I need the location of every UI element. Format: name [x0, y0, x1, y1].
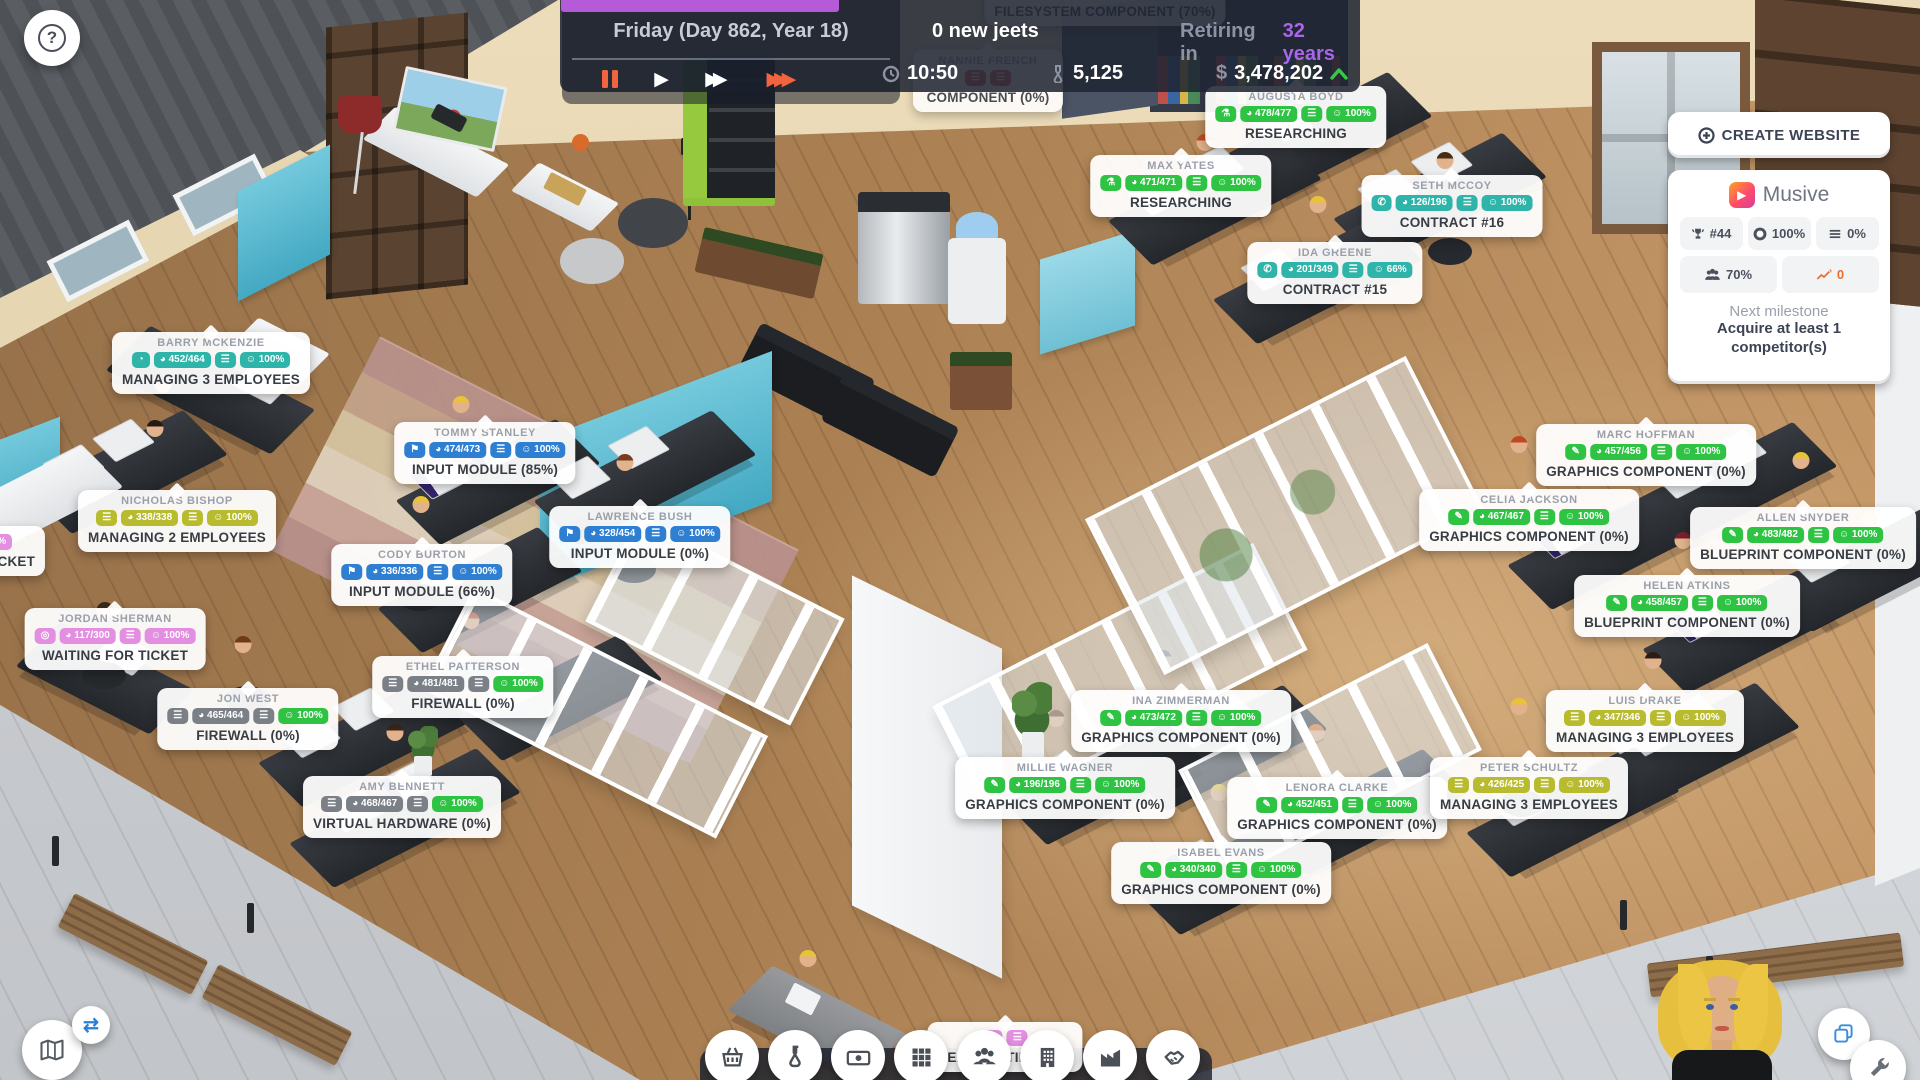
- employee-name: NICHOLAS BISHOP: [88, 495, 266, 507]
- bollard: [52, 836, 59, 866]
- employee-task: BLUEPRINT COMPONENT (0%): [1700, 547, 1906, 562]
- speed-badge: ◕ 471/471: [1125, 175, 1182, 191]
- employee-card[interactable]: LENORA CLARKE✎◕ 452/451☰☺ 100%GRAPHICS C…: [1227, 777, 1447, 839]
- mood-badge: ☺ 100%: [1675, 710, 1726, 726]
- queue-icon: ☰: [253, 708, 274, 724]
- mood-badge: ☺ 100%: [1367, 797, 1418, 813]
- speed-badge: ◕ 347/346: [1589, 710, 1646, 726]
- money-up-icon: [1330, 67, 1348, 80]
- mood-badge: ☺ 100%: [1717, 595, 1768, 611]
- toolbar-building-button[interactable]: [1020, 1030, 1074, 1080]
- role-icon: ☰: [321, 796, 342, 812]
- queue-icon: ☰: [1534, 509, 1555, 525]
- queue-icon: ☰: [468, 676, 489, 692]
- mood-badge: ☺ 100%: [432, 796, 483, 812]
- red-lamp: [338, 96, 382, 134]
- employee-name: LENORA CLARKE: [1237, 782, 1437, 794]
- employee-name: MARC HOFFMAN: [1546, 429, 1746, 441]
- building-icon: [1034, 1044, 1061, 1071]
- role-icon: ⚑: [404, 442, 425, 458]
- create-website-button[interactable]: CREATE WEBSITE: [1668, 112, 1890, 158]
- coffee-machine: [858, 192, 950, 304]
- employee-badges: ⚗◕ 471/471☰☺ 100%: [1100, 175, 1261, 191]
- queue-icon: ☰: [1301, 106, 1322, 122]
- mood-badge: ☺ 100%: [1251, 862, 1302, 878]
- tv-screen: [392, 66, 507, 152]
- employee-name: ETHEL PATTERSON: [382, 661, 543, 673]
- speed-badge: ◕ 336/336: [366, 564, 423, 580]
- employee-badges: ✎◕ 457/456☰☺ 100%: [1546, 444, 1746, 460]
- bollard: [247, 903, 254, 933]
- employee-badges: ✎◕ 340/340☰☺ 100%: [1121, 862, 1321, 878]
- toolbar-deals-button[interactable]: [1146, 1030, 1200, 1080]
- deals-icon: [1160, 1044, 1187, 1071]
- game-viewport: BARRY MCKENZIE◔◕ 452/464☰☺ 100%MANAGING …: [0, 0, 1920, 1080]
- queue-icon: ☰: [1457, 195, 1478, 211]
- speed-badge: ◕ 458/457: [1631, 595, 1688, 611]
- employee-badges: ✎◕ 196/196☰☺ 100%: [965, 777, 1165, 793]
- new-jeets-label: 0 new jeets: [932, 20, 1039, 43]
- mood-badge: ☺ 100%: [207, 510, 258, 526]
- employee-card[interactable]: ALLEN SNYDER✎◕ 483/482☰☺ 100%BLUEPRINT C…: [1690, 507, 1916, 569]
- employee-card[interactable]: ETHEL PATTERSON☰◕ 481/481☰☺ 100%FIREWALL…: [372, 656, 553, 718]
- employee-badges: ☰◕ 465/464☰☺ 100%: [167, 708, 328, 724]
- speed-badge: ◕ 473/472: [1125, 710, 1182, 726]
- employee-card[interactable]: HELEN ATKINS✎◕ 458/457☰☺ 100%BLUEPRINT C…: [1574, 575, 1800, 637]
- tv-console: [363, 107, 510, 198]
- employee-task: GRAPHICS COMPONENT (0%): [1121, 882, 1321, 897]
- queue-icon: ☰: [1070, 777, 1091, 793]
- role-icon: ◔: [132, 352, 150, 368]
- speed-badge: ◕ 201/349: [1282, 262, 1339, 278]
- employee-badges: ✎◕ 483/482☰☺ 100%: [1700, 527, 1906, 543]
- employee-name: CELIA JACKSON: [1429, 494, 1629, 506]
- queue-icon: ☰: [182, 510, 203, 526]
- employee-task: MANAGING 3 EMPLOYEES: [122, 372, 300, 387]
- rotate-button[interactable]: ⇄: [72, 1006, 110, 1044]
- character[interactable]: [382, 740, 408, 770]
- rotate-icon: ⇄: [83, 1014, 99, 1037]
- employee-badges: ☰◕ 347/346☰☺ 100%: [1556, 710, 1734, 726]
- role-icon: ⚑: [559, 526, 580, 542]
- website-summary-card[interactable]: ▶ Musive #44 100% 0% 70% 0: [1668, 170, 1890, 384]
- basketball: [572, 134, 589, 151]
- plus-icon: [1698, 127, 1715, 144]
- mood-badge: ☺ 100%: [1095, 777, 1146, 793]
- employee-badges: ☰◕ 481/481☰☺ 100%: [382, 676, 543, 692]
- mood-badge: ☺ 100%: [240, 352, 291, 368]
- queue-icon: ☰: [407, 796, 428, 812]
- planter-box: [694, 227, 823, 299]
- speed-badge: ◕ 467/467: [1473, 509, 1530, 525]
- employee-name: PETER SCHULTZ: [1440, 762, 1618, 774]
- speed-badge: ◕ 465/464: [192, 708, 249, 724]
- employee-name: AMY BENNETT: [313, 781, 491, 793]
- bench: [58, 893, 209, 995]
- teal-divider: [1040, 230, 1135, 354]
- employee-task: FIREWALL (0%): [382, 696, 543, 711]
- role-icon: ☰: [96, 510, 117, 526]
- character[interactable]: [612, 470, 638, 500]
- queue-icon: ☰: [1650, 710, 1671, 726]
- employee-card[interactable]: TOMMY STANLEY⚑◕ 474/473☰☺ 100%INPUT MODU…: [394, 422, 575, 484]
- bench: [1647, 933, 1904, 998]
- employee-badges: ⚑◕ 474/473☰☺ 100%: [404, 442, 565, 458]
- lifebuoy-icon: [1753, 227, 1767, 241]
- role-icon: ☰: [1448, 777, 1469, 793]
- employee-task: GRAPHICS COMPONENT (0%): [965, 797, 1165, 812]
- employee-badges: ✎◕ 467/467☰☺ 100%: [1429, 509, 1629, 525]
- employee-card[interactable]: PETER SCHULTZ☰◕ 426/425☰☺ 100%MANAGING 3…: [1430, 757, 1628, 819]
- character[interactable]: [1506, 452, 1532, 482]
- speed-badge: ◕ 452/451: [1281, 797, 1338, 813]
- toolbar-production-button[interactable]: [1083, 1030, 1137, 1080]
- speed-badge: ◕ 483/482: [1747, 527, 1804, 543]
- employee-task: COMPONENT (0%): [923, 90, 1053, 105]
- toolbar-finances-button[interactable]: [831, 1030, 885, 1080]
- play-button[interactable]: ▶: [638, 66, 678, 92]
- office-chair: [1428, 238, 1472, 265]
- employee-task: GRAPHICS COMPONENT (0%): [1081, 730, 1281, 745]
- speed-badge: ◕ 117/300: [59, 628, 115, 644]
- employee-name: LUIS DRAKE: [1556, 695, 1734, 707]
- website-logo-icon: ▶: [1729, 182, 1755, 208]
- lamp-pole: [353, 132, 364, 194]
- queue-icon: ☰: [1343, 262, 1364, 278]
- day-panel: Friday (Day 862, Year 18) ▶ ▶▶ ▶▶▶: [562, 0, 900, 104]
- milestone-label: Next milestone: [1678, 303, 1880, 320]
- employee-name: IDA GREENE: [1257, 247, 1412, 259]
- employee-card[interactable]: MAX YATES⚗◕ 471/471☰☺ 100%RESEARCHING: [1090, 155, 1271, 217]
- help-button[interactable]: ?: [24, 10, 80, 66]
- fast-forward-button[interactable]: ▶▶: [686, 66, 738, 92]
- chart-icon: [1816, 268, 1832, 282]
- map-icon: [38, 1036, 66, 1064]
- employee-name: SETH MCCOY: [1372, 180, 1533, 192]
- clock-indicator: 10:50: [882, 62, 958, 85]
- role-icon: ☰: [382, 676, 403, 692]
- queue-icon: ☰: [1342, 797, 1363, 813]
- plant-pot: [414, 756, 432, 776]
- employee-card[interactable]: BARRY MCKENZIE◔◕ 452/464☰☺ 100%MANAGING …: [112, 332, 310, 394]
- employee-task: MANAGING 3 EMPLOYEES: [1440, 797, 1618, 812]
- users-stat: 70%: [1680, 256, 1777, 293]
- speed-badge: ◕ 328/454: [584, 526, 641, 542]
- employee-badges: ☰◕ 468/467☰☺ 100%: [313, 796, 491, 812]
- employee-name: HELEN ATKINS: [1584, 580, 1790, 592]
- research-indicator: 5,125: [1050, 62, 1123, 85]
- role-icon: ✎: [1566, 444, 1586, 460]
- research-icon: [782, 1044, 809, 1071]
- queue-icon: ☰: [427, 564, 448, 580]
- top-status-bar: Friday (Day 862, Year 18) ▶ ▶▶ ▶▶▶ 0 new…: [560, 0, 1360, 92]
- money-indicator: $ 3,478,202: [1216, 62, 1348, 85]
- teal-divider: [0, 417, 60, 539]
- mood-badge: ☺ 100%: [1676, 444, 1727, 460]
- mood-badge: ☺ 100%: [452, 564, 503, 580]
- speed-badge: ◕ 481/481: [407, 676, 464, 692]
- speed-badge: ◕ 340/340: [1165, 862, 1222, 878]
- pizza-box: [543, 172, 587, 206]
- clock-icon: [882, 65, 900, 83]
- employee-task: MANAGING 3 EMPLOYEES: [1556, 730, 1734, 745]
- team-icon: [971, 1044, 998, 1071]
- mood-badge: ☺ 100%: [1833, 527, 1884, 543]
- employee-badges: ⚗◕ 478/477☰☺ 100%: [1215, 106, 1376, 122]
- employee-task: FIREWALL (0%): [167, 728, 328, 743]
- role-icon: ☰: [1564, 710, 1585, 726]
- toolbar-research-button[interactable]: [768, 1030, 822, 1080]
- employee-badges: ◎◕ 117/300☰☺ 100%: [35, 628, 196, 644]
- role-icon: ✎: [1449, 509, 1469, 525]
- date-label: Friday (Day 862, Year 18): [562, 20, 900, 43]
- pouf-dark: [618, 198, 688, 248]
- employee-task: GRAPHICS COMPONENT (0%): [1429, 529, 1629, 544]
- uptime-stat: 100%: [1748, 217, 1811, 250]
- toolbar-team-button[interactable]: [957, 1030, 1011, 1080]
- employee-badges: ✎◕ 458/457☰☺ 100%: [1584, 595, 1790, 611]
- employee-card[interactable]: ISABEL EVANS✎◕ 340/340☰☺ 100%GRAPHICS CO…: [1111, 842, 1331, 904]
- employee-badges: ✎◕ 473/472☰☺ 100%: [1081, 710, 1281, 726]
- apps-icon: [908, 1044, 935, 1071]
- queue-icon: ☰: [1534, 777, 1555, 793]
- character[interactable]: [142, 436, 168, 466]
- employee-name: ISABEL EVANS: [1121, 847, 1321, 859]
- employee-task: GRAPHICS COMPONENT (0%): [1237, 817, 1437, 832]
- employee-name: CODY BURTON: [341, 549, 502, 561]
- employee-name: AUGUSTA BOYD: [1215, 91, 1376, 103]
- role-icon: ✎: [1101, 710, 1121, 726]
- employee-card[interactable]: SETH MCCOY✆◕ 126/196☰☺ 100%CONTRACT #16: [1362, 175, 1543, 237]
- employee-task: INPUT MODULE (85%): [404, 462, 565, 477]
- mood-badge: ☺ 100%: [670, 526, 721, 542]
- sofa: [820, 370, 959, 478]
- character[interactable]: [795, 966, 821, 996]
- mood-badge: ☺ 100%: [493, 676, 544, 692]
- planter-box: [950, 352, 1012, 410]
- employee-badges: ☰◕ 338/338☰☺ 100%: [88, 510, 266, 526]
- bollard: [1706, 956, 1713, 986]
- employee-name: JON WEST: [167, 693, 328, 705]
- speed-badge: ◕ 426/425: [1473, 777, 1530, 793]
- employee-task: BLUEPRINT COMPONENT (0%): [1584, 615, 1790, 630]
- growth-stat: 0: [1782, 256, 1879, 293]
- employee-name: BARRY MCKENZIE: [122, 337, 300, 349]
- speaker: [681, 138, 696, 155]
- employee-name: ALLEN SNYDER: [1700, 512, 1906, 524]
- speed-badge: ◕ 452/464: [154, 352, 211, 368]
- pause-button[interactable]: [590, 66, 630, 92]
- mood-badge: ☺ 100%: [515, 442, 566, 458]
- employee-task: CONTRACT #15: [1257, 282, 1412, 297]
- date-divider: [572, 58, 890, 60]
- employee-name: LAWRENCE BUSH: [559, 511, 720, 523]
- mood-badge: ☺ 100%: [1482, 195, 1533, 211]
- employee-name: MILLIE WAGNER: [965, 762, 1165, 774]
- character[interactable]: [1305, 212, 1331, 242]
- queue-icon: ☰: [215, 352, 236, 368]
- coffee-table: [511, 162, 619, 231]
- employee-badges: ◔◕ 452/464☰☺ 100%: [122, 352, 300, 368]
- employee-card[interactable]: MARC HOFFMAN✎◕ 457/456☰☺ 100%GRAPHICS CO…: [1536, 424, 1756, 486]
- game-console: [430, 103, 468, 133]
- employee-card[interactable]: ◎☰☺ 100%WAITING FOR TICKET: [0, 526, 45, 576]
- employee-card[interactable]: LAWRENCE BUSH⚑◕ 328/454☰☺ 100%INPUT MODU…: [549, 506, 730, 568]
- character[interactable]: [230, 652, 256, 682]
- trophy-icon: [1691, 227, 1705, 241]
- bench: [202, 964, 353, 1066]
- employee-task: INPUT MODULE (0%): [559, 546, 720, 561]
- role-icon: ✎: [1141, 862, 1161, 878]
- employee-badges: ◎☰☺ 100%: [0, 534, 35, 550]
- speed-badge: ◕ 126/196: [1396, 195, 1453, 211]
- employee-name: INA ZIMMERMAN: [1081, 695, 1281, 707]
- toolbar-apps-button[interactable]: [894, 1030, 948, 1080]
- employee-badges: ✎◕ 452/451☰☺ 100%: [1237, 797, 1437, 813]
- queue-icon: ☰: [490, 442, 511, 458]
- employee-card[interactable]: NICHOLAS BISHOP☰◕ 338/338☰☺ 100%MANAGING…: [78, 490, 276, 552]
- role-icon: ⚗: [1100, 175, 1121, 191]
- mood-badge: ☺ 100%: [278, 708, 329, 724]
- employee-card[interactable]: AUGUSTA BOYD⚗◕ 478/477☰☺ 100%RESEARCHING: [1205, 86, 1386, 148]
- plant: [408, 726, 438, 760]
- speaker-stand: [688, 150, 691, 220]
- speed-badge: ◕ 196/196: [1009, 777, 1066, 793]
- queue-icon: ☰: [1186, 175, 1207, 191]
- character[interactable]: [1303, 740, 1329, 770]
- mood-badge: ☺ 100%: [0, 534, 12, 550]
- role-icon: ✎: [1723, 527, 1743, 543]
- role-icon: ✎: [1257, 797, 1277, 813]
- speed-badge: ◕ 474/473: [429, 442, 486, 458]
- employee-task: RESEARCHING: [1100, 195, 1261, 210]
- employee-task: MANAGING 2 EMPLOYEES: [88, 530, 266, 545]
- employee-card[interactable]: IDA GREENE✆◕ 201/349☰☺ 66%CONTRACT #15: [1247, 242, 1422, 304]
- queue-icon: [1828, 227, 1842, 241]
- queue-icon: ☰: [1651, 444, 1672, 460]
- queue-icon: ☰: [645, 526, 666, 542]
- queue-icon: ☰: [1692, 595, 1713, 611]
- bollard: [1620, 900, 1627, 930]
- production-icon: [1097, 1044, 1124, 1071]
- sofa: [736, 322, 875, 430]
- queue-icon: ☰: [120, 628, 141, 644]
- window: [47, 220, 150, 303]
- laptop: [785, 982, 822, 1015]
- employee-card[interactable]: CODY BURTON⚑◕ 336/336☰☺ 100%INPUT MODULE…: [331, 544, 512, 606]
- milestone-text: Acquire at least 1 competitor(s): [1678, 320, 1880, 358]
- ceo-avatar[interactable]: [1648, 948, 1798, 1080]
- store-icon: [719, 1044, 746, 1071]
- queue-icon: ☰: [1808, 527, 1829, 543]
- employee-task: WAITING FOR TICKET: [35, 648, 196, 663]
- employee-name: TOMMY STANLEY: [404, 427, 565, 439]
- toolbar-store-button[interactable]: [705, 1030, 759, 1080]
- queue-icon: ☰: [1186, 710, 1207, 726]
- mood-badge: ☺ 66%: [1368, 262, 1413, 278]
- employee-card[interactable]: JORDAN SHERMAN◎◕ 117/300☰☺ 100%WAITING F…: [25, 608, 206, 670]
- employee-task: VIRTUAL HARDWARE (0%): [313, 816, 491, 831]
- finances-icon: [845, 1044, 872, 1071]
- employee-badges: ☰◕ 426/425☰☺ 100%: [1440, 777, 1618, 793]
- window: [173, 154, 276, 237]
- mood-badge: ☺ 100%: [1559, 509, 1610, 525]
- speed-badge: ◕ 478/477: [1240, 106, 1297, 122]
- users-icon: [1704, 268, 1721, 282]
- employee-card[interactable]: INA ZIMMERMAN✎◕ 473/472☰☺ 100%GRAPHICS C…: [1071, 690, 1291, 752]
- employee-task: INPUT MODULE (66%): [341, 584, 502, 599]
- queue-stat: 0%: [1816, 217, 1879, 250]
- plant-pot: [1022, 732, 1044, 758]
- rank-stat: #44: [1680, 217, 1743, 250]
- employee-badges: ⚑◕ 336/336☰☺ 100%: [341, 564, 502, 580]
- shoji-screen: [326, 13, 468, 300]
- water-bottle: [956, 212, 998, 242]
- mood-badge: ☺ 100%: [145, 628, 196, 644]
- website-name: Musive: [1763, 183, 1830, 207]
- character[interactable]: [1506, 714, 1532, 744]
- employee-task: CONTRACT #16: [1372, 215, 1533, 230]
- employee-card[interactable]: MILLIE WAGNER✎◕ 196/196☰☺ 100%GRAPHICS C…: [955, 757, 1175, 819]
- speed-badge: ◕ 338/338: [121, 510, 178, 526]
- role-icon: ✆: [1372, 195, 1392, 211]
- employee-task: RESEARCHING: [1215, 126, 1376, 141]
- employee-card[interactable]: LUIS DRAKE☰◕ 347/346☰☺ 100%MANAGING 3 EM…: [1546, 690, 1744, 752]
- mood-badge: ☺ 100%: [1326, 106, 1377, 122]
- employee-task: GRAPHICS COMPONENT (0%): [1546, 464, 1746, 479]
- employee-badges: ✆◕ 126/196☰☺ 100%: [1372, 195, 1533, 211]
- role-icon: ✎: [985, 777, 1005, 793]
- role-icon: ⚑: [341, 564, 362, 580]
- retirement-label: Retiring in32 years: [1180, 20, 1360, 66]
- mood-badge: ☺ 100%: [1211, 710, 1262, 726]
- role-icon: ☰: [167, 708, 188, 724]
- website-header: ▶ Musive: [1678, 182, 1880, 208]
- mood-badge: ☺ 100%: [1559, 777, 1610, 793]
- fastest-forward-button[interactable]: ▶▶▶: [744, 66, 810, 92]
- flask-icon: [1050, 65, 1066, 83]
- employee-name: JORDAN SHERMAN: [35, 613, 196, 625]
- character[interactable]: [150, 392, 176, 422]
- water-cooler: [948, 238, 1006, 324]
- speed-badge: ◕ 468/467: [346, 796, 403, 812]
- plant: [1012, 682, 1052, 736]
- mood-badge: ☺ 100%: [1211, 175, 1262, 191]
- teal-divider: [238, 145, 330, 302]
- employee-name: MAX YATES: [1100, 160, 1261, 172]
- pouf-light: [560, 238, 624, 284]
- day-progress-bar: [561, 0, 839, 12]
- layers-icon: [1831, 1021, 1857, 1047]
- employee-card[interactable]: CELIA JACKSON✎◕ 467/467☰☺ 100%GRAPHICS C…: [1419, 489, 1639, 551]
- role-icon: ✆: [1257, 262, 1277, 278]
- wrench-icon: [1865, 1055, 1892, 1080]
- speed-badge: ◕ 457/456: [1590, 444, 1647, 460]
- role-icon: ⚗: [1215, 106, 1236, 122]
- employee-card[interactable]: JON WEST☰◕ 465/464☰☺ 100%FIREWALL (0%): [157, 688, 338, 750]
- employee-card[interactable]: AMY BENNETT☰◕ 468/467☰☺ 100%VIRTUAL HARD…: [303, 776, 501, 838]
- character[interactable]: [1788, 468, 1814, 498]
- employee-task: WAITING FOR TICKET: [0, 554, 35, 569]
- employee-badges: ✆◕ 201/349☰☺ 66%: [1257, 262, 1412, 278]
- role-icon: ✎: [1607, 595, 1627, 611]
- employee-badges: ⚑◕ 328/454☰☺ 100%: [559, 526, 720, 542]
- role-icon: ◎: [35, 628, 56, 644]
- queue-icon: ☰: [1226, 862, 1247, 878]
